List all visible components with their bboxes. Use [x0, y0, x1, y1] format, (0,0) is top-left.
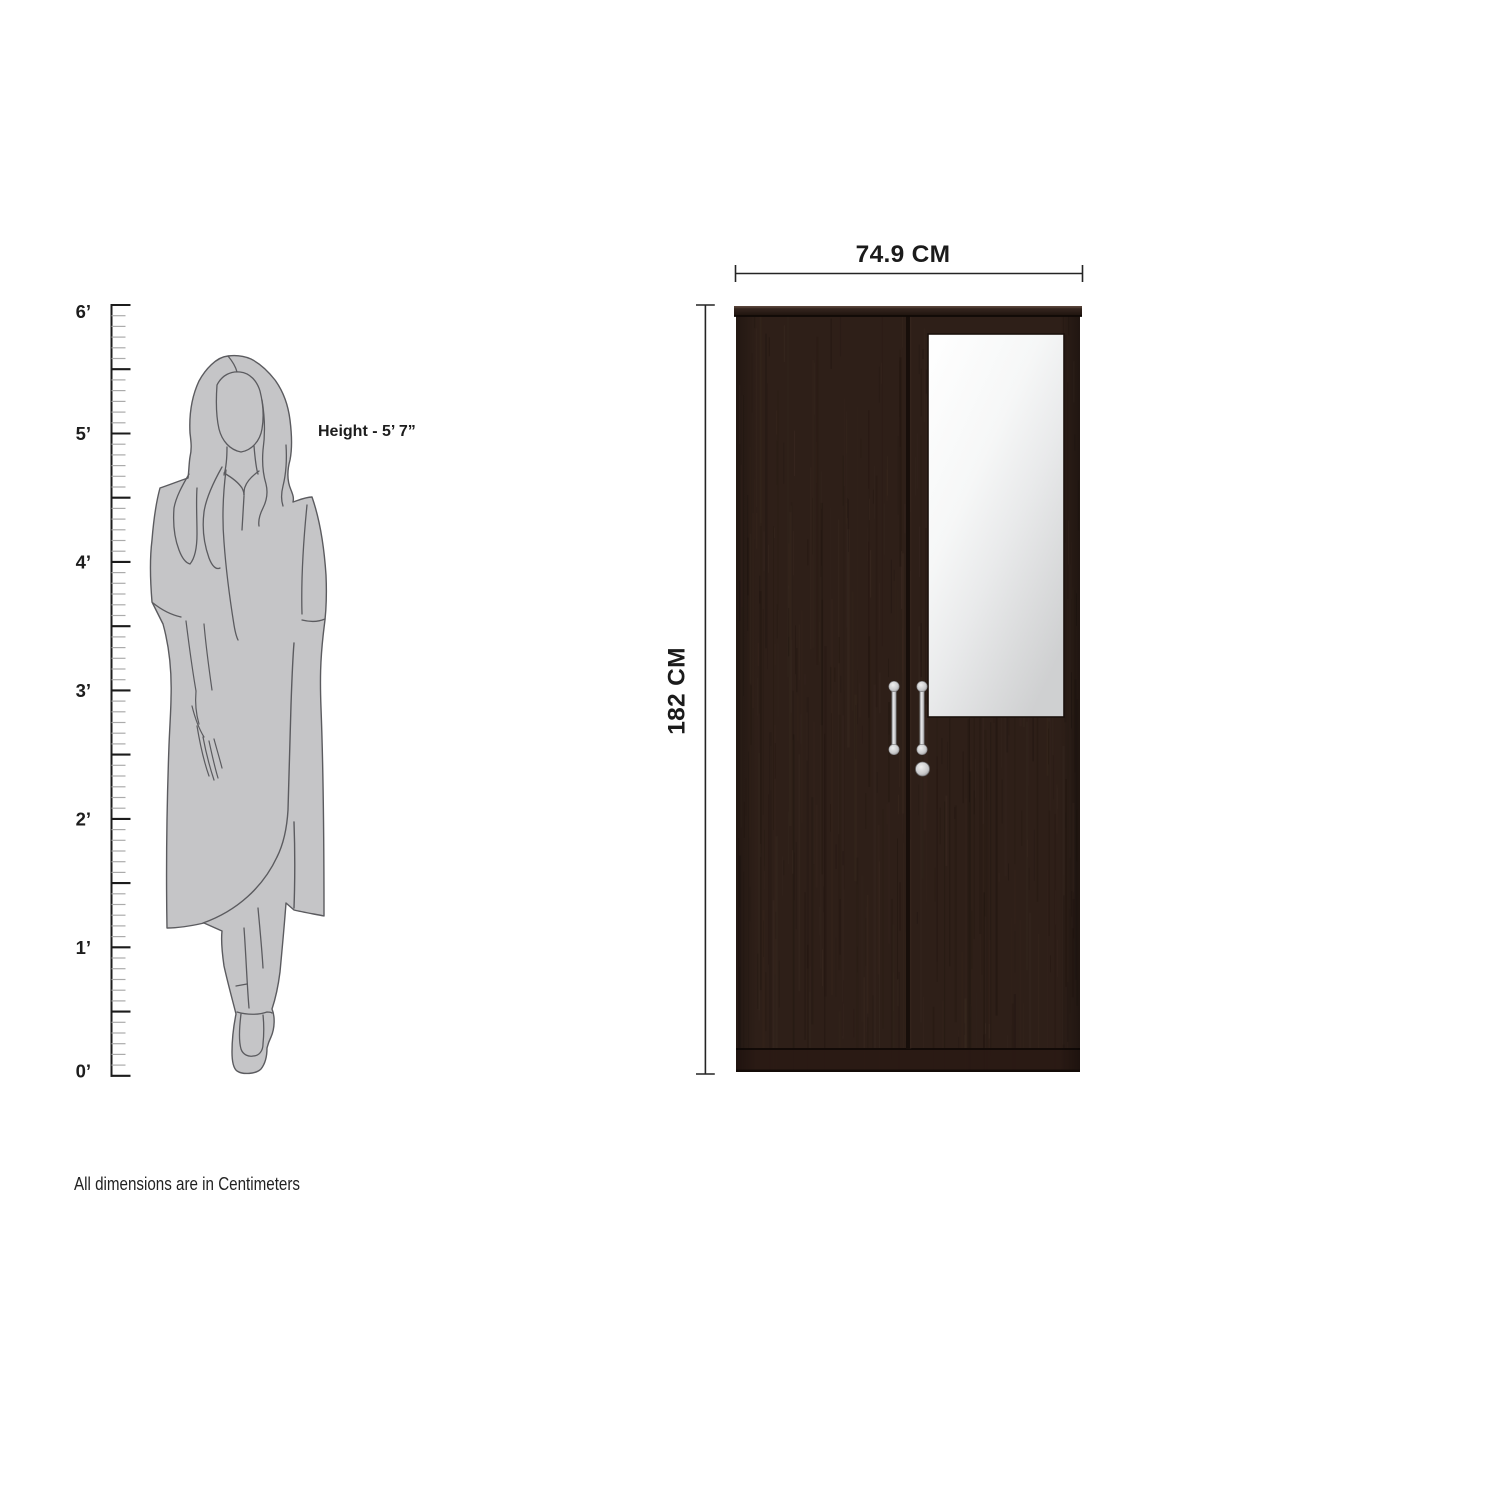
- svg-text:1’: 1’: [76, 937, 91, 958]
- svg-text:182 CM: 182 CM: [664, 647, 691, 735]
- svg-text:4’: 4’: [76, 551, 91, 572]
- svg-text:2’: 2’: [76, 808, 91, 829]
- svg-text:74.9 CM: 74.9 CM: [856, 241, 951, 268]
- svg-text:6’: 6’: [76, 301, 91, 322]
- svg-text:Height - 5’ 7”: Height - 5’ 7”: [318, 423, 416, 440]
- svg-text:5’: 5’: [76, 423, 91, 444]
- svg-text:All dimensions are in Centimet: All dimensions are in Centimeters: [74, 1174, 300, 1194]
- svg-text:0’: 0’: [76, 1060, 91, 1081]
- svg-text:3’: 3’: [76, 680, 91, 701]
